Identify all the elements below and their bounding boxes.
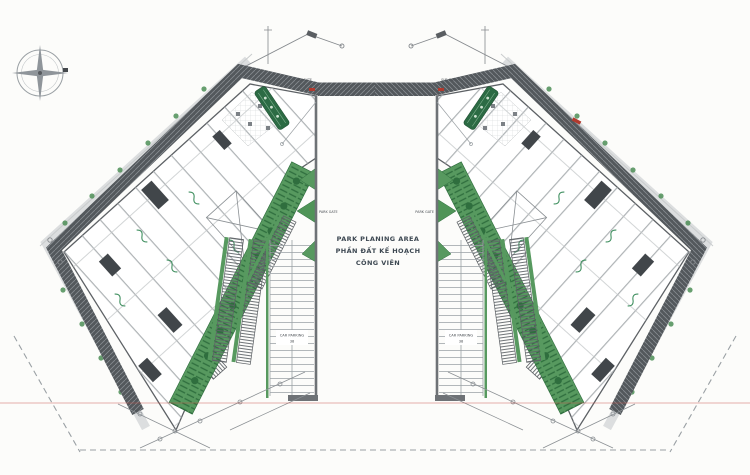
park-area-label-line1: PARK PLANING AREA bbox=[337, 235, 420, 243]
park-gate-label-left: PARK GATE bbox=[319, 210, 338, 214]
survey-flag bbox=[306, 30, 317, 38]
site-plan-sheet: PARK PLANING AREA PHẦN ĐẤT KẾ HOẠCH CÔNG… bbox=[0, 0, 750, 475]
car-parking-stalls bbox=[266, 238, 314, 398]
corridor-top-road-band bbox=[318, 83, 378, 96]
car-parking-count-right: 38 bbox=[459, 340, 464, 344]
park-area-label-line3: CÔNG VIÊN bbox=[356, 258, 400, 267]
park-gate-label-right: PARK GATE bbox=[415, 210, 434, 214]
sub-gate-label-right: SUB GATE bbox=[441, 78, 457, 82]
right-wing bbox=[375, 26, 713, 448]
bottom-right-boundary bbox=[670, 336, 736, 452]
car-parking-count-left: 38 bbox=[290, 340, 295, 344]
left-wing bbox=[40, 26, 378, 448]
car-parking-text-left: CAR PARKING bbox=[280, 334, 305, 338]
red-tick bbox=[309, 88, 315, 91]
sub-gate-label-left: SUB GATE bbox=[296, 78, 312, 82]
car-parking-label-right: CAR PARKING 38 bbox=[445, 330, 477, 345]
compass-rose bbox=[12, 45, 68, 101]
car-parking-text-right: CAR PARKING bbox=[449, 334, 474, 338]
car-parking-label-left: CAR PARKING 38 bbox=[276, 330, 308, 345]
bottom-left-boundary bbox=[14, 336, 80, 452]
site-plan-drawing: PARK PLANING AREA PHẦN ĐẤT KẾ HOẠCH CÔNG… bbox=[0, 0, 750, 475]
central-park-area-labels: PARK PLANING AREA PHẦN ĐẤT KẾ HOẠCH CÔNG… bbox=[336, 235, 421, 267]
compass-east-mark bbox=[63, 68, 68, 72]
park-area-label-line2: PHẦN ĐẤT KẾ HOẠCH bbox=[336, 245, 421, 255]
